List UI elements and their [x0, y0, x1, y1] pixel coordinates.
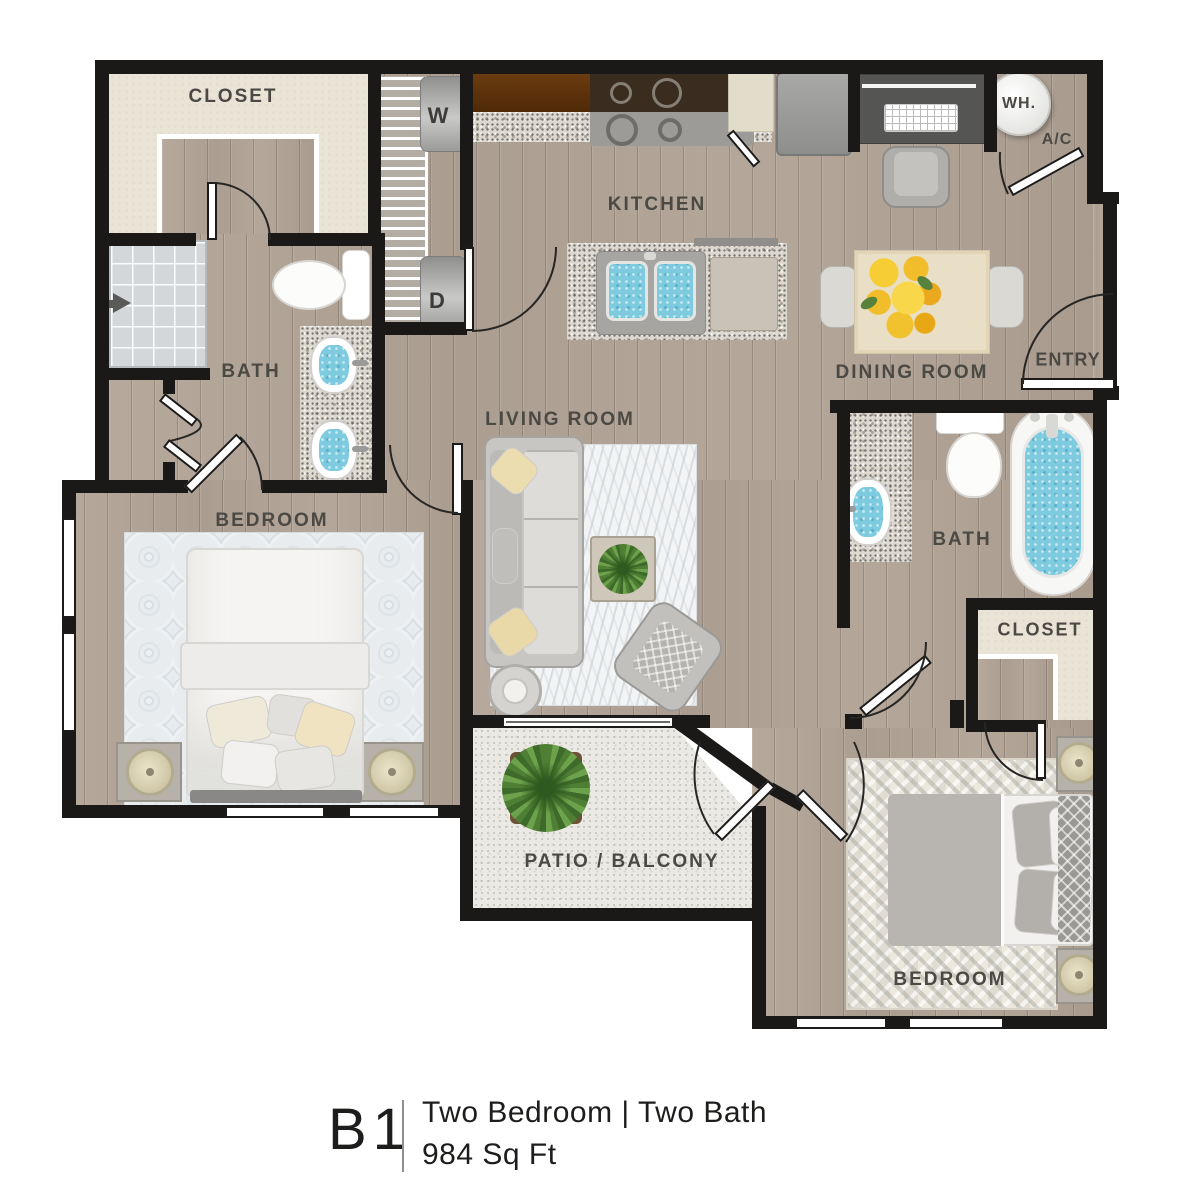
label-closet-right: CLOSET: [997, 620, 1082, 641]
plan-code: B1: [328, 1096, 411, 1163]
label-closet-top: CLOSET: [188, 86, 277, 108]
label-washer: W: [428, 103, 449, 129]
label-bath-left: BATH: [221, 361, 280, 383]
label-kitchen: KITCHEN: [608, 194, 706, 216]
floor-plan: CLOSET W D KITCHEN DINING ROOM WH. A/C E…: [0, 0, 1182, 1200]
label-ac: A/C: [1042, 131, 1073, 149]
door-arcs: [0, 0, 1182, 1200]
sliding-glass-door: [502, 716, 674, 728]
caption-divider: [402, 1100, 404, 1172]
window: [62, 632, 76, 732]
label-dryer: D: [429, 288, 445, 314]
label-patio: PATIO / BALCONY: [524, 851, 719, 873]
label-dining: DINING ROOM: [836, 362, 989, 384]
label-entry: ENTRY: [1035, 350, 1100, 371]
window: [795, 1017, 887, 1029]
label-bedroom-left: BEDROOM: [215, 510, 328, 532]
window: [348, 806, 440, 818]
label-bedroom-right: BEDROOM: [893, 969, 1006, 991]
label-bath-right: BATH: [932, 529, 991, 551]
label-water-heater: WH.: [1002, 95, 1036, 113]
window: [908, 1017, 1004, 1029]
window: [225, 806, 325, 818]
plan-type: Two Bedroom | Two Bath: [422, 1096, 767, 1130]
plan-area: 984 Sq Ft: [422, 1138, 557, 1172]
window: [62, 518, 76, 618]
label-living: LIVING ROOM: [485, 409, 635, 431]
